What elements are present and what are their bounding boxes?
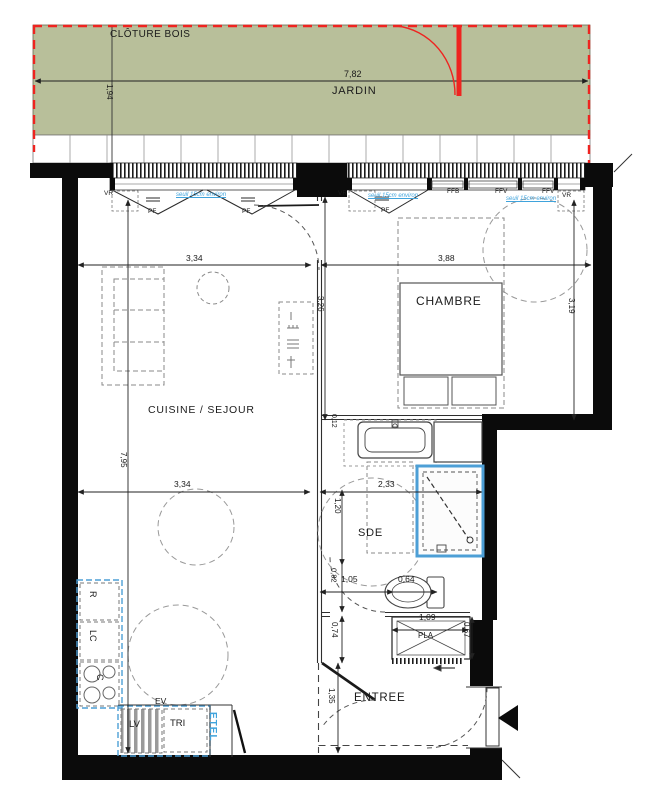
shutter-label: VR [104, 191, 113, 198]
closet-width-dim: 1,09 [419, 613, 436, 622]
window-label-ffv: FFV [542, 189, 554, 196]
wc-height-dim: 0,82 [330, 568, 338, 583]
wc-width-dim: 0,64 [398, 575, 415, 584]
bedroom-height-dim-right: 3,19 [567, 298, 575, 314]
garden-area [33, 25, 590, 163]
arrow-left-icon [434, 665, 441, 671]
closet-height-dim-right: 0,67 [462, 622, 470, 638]
bedroom-width-dim: 3,88 [438, 254, 455, 263]
washer-box [80, 622, 119, 660]
washer-label: LC [88, 630, 97, 642]
threshold-note: seuil 15cm environ [368, 193, 418, 199]
shutter-label: VR [338, 191, 347, 198]
garden-label: JARDIN [332, 86, 377, 97]
garden-depth-dim: 1,94 [105, 84, 113, 100]
entry-height-dim: 1,35 [327, 688, 335, 704]
bedroom-door-swing-arc [254, 205, 319, 270]
garden-width-dim: 7,82 [344, 70, 362, 79]
room-label-bedroom: CHAMBRE [416, 295, 482, 307]
room-label-bath: SDE [358, 528, 383, 539]
room-label-entry: ENTREE [354, 693, 405, 705]
hob-label: C [95, 674, 104, 681]
sink-label: EV [155, 697, 166, 706]
window-label-ffb: FFB [447, 189, 459, 196]
window-label-pf: PF [381, 208, 389, 215]
bed-pillow [452, 377, 496, 405]
fridge-label: R [88, 591, 97, 598]
sorting-label: TRI [170, 719, 185, 729]
floor-plan: CLÔTURE BOIS 7,82 JARDIN 1,94 3,34 3,88 … [0, 0, 646, 800]
room-label-closet: PLA [418, 632, 433, 640]
fridge-box [80, 583, 119, 620]
window-label-ffv: FFV [495, 189, 507, 196]
bedroom-height-dim-left: 3,26 [316, 296, 324, 312]
threshold-note: seuil 15cm environ [176, 192, 226, 198]
side-table [197, 272, 229, 304]
window-label-pf: PF [148, 209, 156, 216]
bath-width-dim: 2,33 [378, 480, 395, 489]
threshold-note: seuil 15cm environ [506, 196, 556, 202]
kitchen-width-dim: 3,34 [186, 254, 203, 263]
etel-label: ETEL [207, 712, 217, 742]
kitchen-width-dim-2: 3,34 [174, 480, 191, 489]
turning-circle [158, 489, 234, 565]
wc-length-dim: 1,05 [341, 575, 358, 584]
bathroom-door-swing-arc [330, 557, 385, 612]
furniture [102, 198, 587, 705]
window-label-pf: PF [242, 209, 250, 216]
kitchen-appliances [77, 580, 245, 757]
bed-pillow [404, 377, 448, 405]
sofa [102, 267, 164, 385]
dishwasher-box [121, 709, 162, 753]
kitchen-height-dim: 7,95 [119, 452, 127, 468]
bath-height-dim: 1,20 [333, 498, 341, 514]
window-band [110, 163, 585, 214]
sorting-box [164, 709, 207, 752]
shutter-label: VR [562, 193, 571, 200]
fence-label: CLÔTURE BOIS [110, 30, 190, 40]
bathroom-cabinet [434, 422, 482, 462]
radiator [279, 302, 313, 374]
room-label-kitchen: CUISINE / SEJOUR [148, 405, 255, 416]
turning-circle [128, 605, 228, 705]
wall-thickness-dim: 0,12 [330, 414, 337, 428]
closet-height-dim-left: 0,74 [330, 622, 338, 638]
dishwasher-label: LV [129, 720, 140, 730]
dimension-lines [78, 197, 591, 753]
terrace-strip [33, 135, 590, 163]
